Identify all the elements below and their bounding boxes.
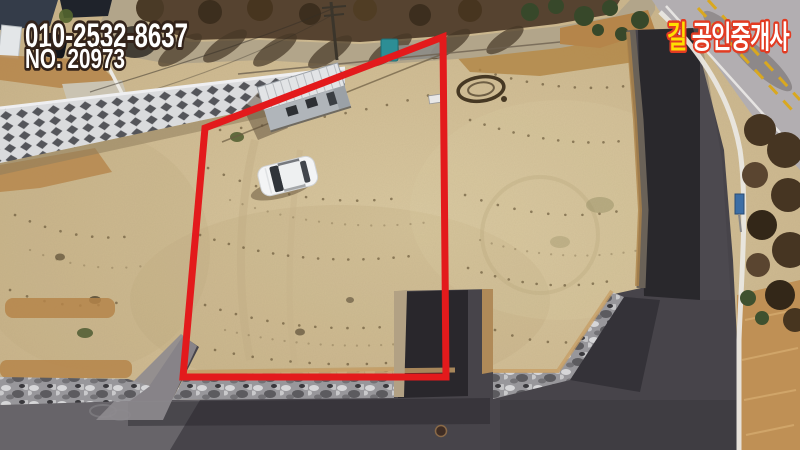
- aerial-photo: 010-2532-8637 NO. 20973 길 공인중개사: [0, 0, 800, 450]
- manhole-cover: [436, 426, 447, 437]
- agency-name: 길 공인중개사: [667, 20, 790, 55]
- listing-number: NO. 20973: [25, 43, 125, 74]
- sign-board: [429, 94, 442, 104]
- road-sign: [735, 194, 744, 214]
- agency-name-rest: 공인중개사: [692, 20, 790, 55]
- agency-name-first: 길: [667, 20, 686, 55]
